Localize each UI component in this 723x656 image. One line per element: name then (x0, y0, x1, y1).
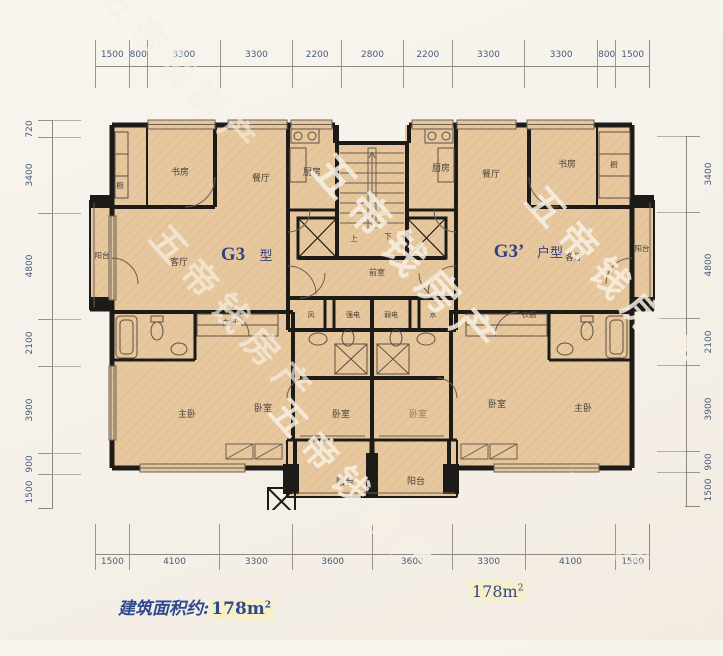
dimension-segment: 900 (38, 453, 53, 474)
room-label-kitchen-right: 厨房 (432, 162, 450, 173)
dimension-segment: 3400 (38, 137, 53, 213)
area-text-right: 178m2 (470, 582, 525, 601)
dimension-segment: 4100 (129, 524, 220, 570)
room-label-master-right: 主卧 (574, 402, 592, 413)
dimension-value: 3600 (321, 557, 344, 567)
dimension-value: 4800 (704, 254, 714, 277)
room-label-cabinet-right: 橱 (610, 159, 618, 169)
dimension-value: 1500 (621, 50, 644, 60)
dimension-value: 3900 (25, 399, 35, 422)
dimension-value: 900 (704, 454, 714, 471)
dimension-value: 2100 (25, 332, 35, 355)
shaft-label-vent: 风 (308, 311, 315, 319)
room-label-kitchen-left: 厨房 (303, 166, 321, 177)
building-area-value: 178m (211, 599, 264, 619)
dimension-segment: 4800 (38, 213, 53, 320)
unit-left-suffix: 型 (259, 248, 272, 263)
dimension-value: 2200 (416, 50, 439, 60)
dimension-segment: 3300 (220, 40, 293, 88)
dimension-segment: 3400 (685, 136, 700, 212)
dimension-value: 3400 (25, 164, 35, 187)
dimension-value: 2200 (306, 50, 329, 60)
dimension-value: 3300 (245, 50, 268, 60)
room-label-bedroom-left-1: 卧室 (254, 402, 272, 413)
building-area-sup: 2 (265, 600, 271, 610)
room-label-bedroom-right-2: 卧室 (488, 398, 506, 409)
dimension-segment: 4100 (525, 524, 616, 570)
dimension-segment: 2200 (403, 40, 452, 88)
unit-left-name: G3 (221, 244, 245, 265)
dimension-chain-left: 72034004800210039009001500 (38, 120, 53, 509)
dimension-segment: 3900 (685, 365, 700, 452)
dimension-chain-bottom: 15004100330036003600330041001500 (95, 524, 650, 570)
room-label-dining-left: 餐厅 (252, 172, 270, 183)
dimension-value: 2100 (704, 330, 714, 353)
dimension-value: 4800 (25, 255, 35, 278)
dimension-segment: 3300 (147, 40, 220, 88)
dimension-value: 720 (25, 120, 35, 137)
dimension-segment: 1500 (38, 474, 53, 508)
dimension-segment: 3300 (452, 40, 525, 88)
room-label-living-right: 客厅 (565, 251, 583, 262)
building-area-label: 建筑面积约: (118, 599, 209, 619)
room-label-bedroom-right-1: 卧室 (409, 408, 427, 419)
dimension-segment: 2100 (685, 318, 700, 365)
floor-plan: 橱 书房 餐厅 厨房 阳台 客厅 衣橱 主卧 卧室 卧室 阳台 前室 风 强电 … (85, 108, 659, 510)
dimension-segment: 1500 (615, 40, 649, 88)
room-label-balcony-left: 阳台 (95, 250, 110, 260)
room-label-cabinet-left: 橱 (116, 180, 124, 190)
dimension-segment: 900 (685, 451, 700, 472)
dimension-segment: 1500 (615, 524, 649, 570)
dimension-value: 800 (130, 50, 147, 60)
dimension-segment: 3900 (38, 366, 53, 453)
dimension-segment: 3300 (219, 524, 292, 570)
dimension-value: 1500 (704, 478, 714, 501)
dimension-value: 1500 (25, 480, 35, 503)
dimension-chain-right: 34004800210039009001500 (685, 136, 700, 507)
dimension-value: 800 (598, 50, 615, 60)
dimension-segment: 1500 (685, 472, 700, 506)
unit-right-suffix: 户型 (537, 245, 563, 260)
dimension-value: 3300 (477, 50, 500, 60)
dimension-value: 3300 (245, 557, 268, 567)
room-label-bedroom-left-2: 卧室 (332, 408, 350, 419)
dimension-segment: 2100 (38, 319, 53, 366)
dimension-value: 1500 (101, 50, 124, 60)
dimension-segment: 2200 (292, 40, 341, 88)
dimension-segment: 3300 (524, 40, 597, 88)
dimension-value: 1500 (621, 557, 644, 567)
room-label-study-right: 书房 (558, 158, 576, 169)
room-label-lobby: 前室 (369, 267, 385, 277)
dimension-chain-top: 1500800330033002200280022003300330080015… (95, 40, 650, 88)
room-label-balcony-bottom-left: 阳台 (336, 476, 354, 487)
area-value-right: 178m (472, 582, 518, 601)
building-area-text: 建筑面积约:178m2 (118, 594, 273, 619)
dimension-value: 3400 (704, 163, 714, 186)
room-label-balcony-bottom-right: 阳台 (407, 475, 425, 486)
unit-right-name: G3’ (494, 241, 525, 262)
dimension-value: 1500 (101, 557, 124, 567)
shaft-label-water: 水 (430, 310, 437, 319)
dimension-segment: 3600 (292, 524, 372, 570)
area-sup-right: 2 (518, 584, 524, 594)
dimension-value: 4100 (163, 557, 186, 567)
room-label-study-left: 书房 (171, 166, 189, 177)
stairs-down-label: 下 (384, 232, 392, 241)
dimension-segment: 1500 (95, 40, 129, 88)
dimension-segment: 3600 (372, 524, 452, 570)
dimension-value: 3900 (704, 397, 714, 420)
shaft-label-strong-electric: 强电 (346, 310, 360, 319)
dimension-value: 2800 (361, 50, 384, 60)
dimension-segment: 800 (597, 40, 615, 88)
room-label-wardrobe-right: 衣橱 (522, 309, 537, 319)
dimension-value: 3300 (477, 557, 500, 567)
stairs-up-label: 上 (350, 234, 358, 243)
dimension-value: 3300 (550, 50, 573, 60)
room-label-living-left: 客厅 (170, 256, 188, 267)
dimension-value: 900 (25, 456, 35, 473)
room-label-balcony-right: 阳台 (635, 243, 650, 253)
dimension-segment: 1500 (95, 524, 129, 570)
dimension-value: 3600 (401, 557, 424, 567)
room-label-master-left: 主卧 (178, 408, 196, 419)
dimension-segment: 3300 (452, 524, 525, 570)
dimension-segment: 4800 (685, 212, 700, 318)
dimension-value: 3300 (172, 50, 195, 60)
dimension-segment: 2800 (341, 40, 403, 88)
shaft-label-weak-electric: 弱电 (384, 310, 398, 319)
dimension-segment: 720 (38, 120, 53, 137)
dimension-segment: 800 (129, 40, 147, 88)
dimension-value: 4100 (559, 557, 582, 567)
room-label-wardrobe-left: 衣橱 (222, 317, 237, 327)
room-label-dining-right: 餐厅 (482, 168, 500, 179)
